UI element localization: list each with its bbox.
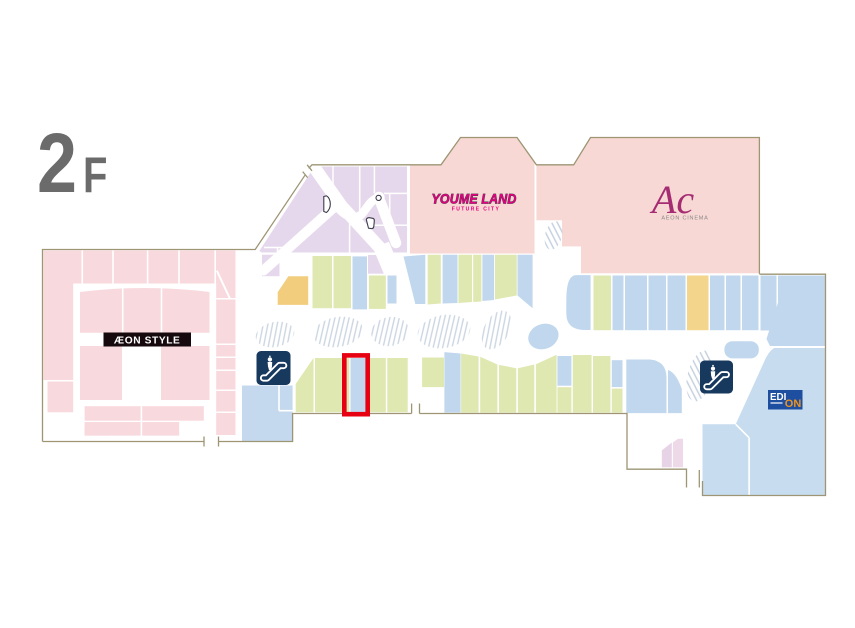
svg-text:ÆON STYLE: ÆON STYLE <box>114 335 181 346</box>
svg-text:ON: ON <box>785 398 802 410</box>
svg-text:FUTURE CITY: FUTURE CITY <box>452 207 500 213</box>
svg-text:YOUME LAND: YOUME LAND <box>432 192 517 207</box>
svg-text:2: 2 <box>37 116 77 210</box>
svg-text:AEON CINEMA: AEON CINEMA <box>661 216 708 222</box>
svg-text:F: F <box>83 147 107 203</box>
